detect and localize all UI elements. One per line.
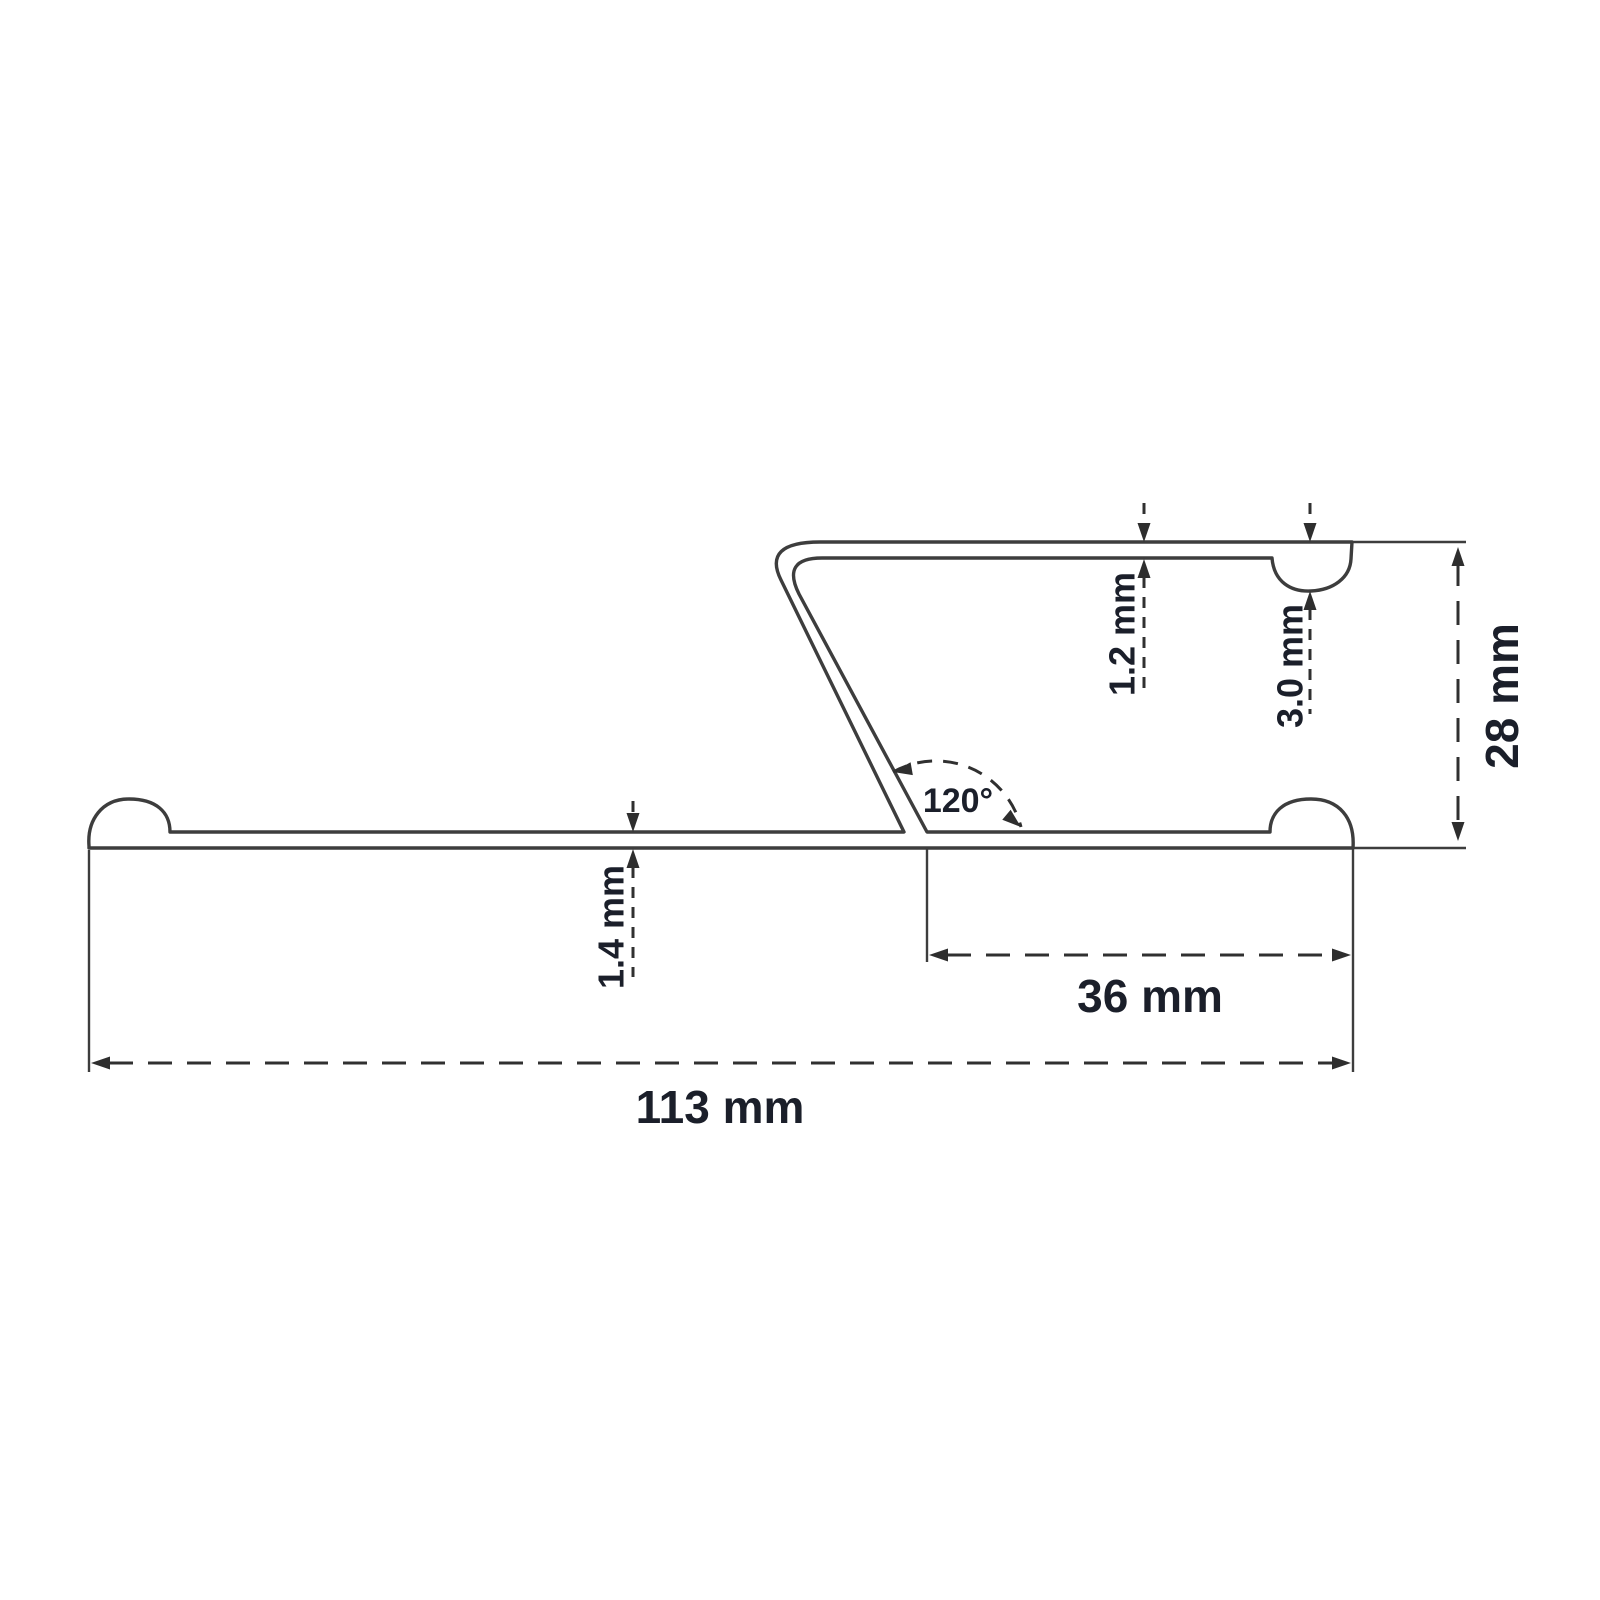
arrow-right-icon — [1332, 1057, 1351, 1070]
arrow-down-icon — [1452, 822, 1465, 841]
dim-label-base-thickness: 1.4 mm — [591, 865, 632, 989]
arrow-down-icon — [627, 813, 640, 832]
dim-label-overall-width: 113 mm — [636, 1081, 805, 1133]
arrow-down-icon — [1138, 523, 1151, 542]
dim-leg-offset: 36 mm — [927, 848, 1351, 1022]
dim-flange-thickness: 1.2 mm — [1102, 503, 1151, 696]
dim-label-leg-offset: 36 mm — [1077, 970, 1223, 1022]
dim-base-thickness: 1.4 mm — [591, 801, 640, 989]
dim-label-overall-height: 28 mm — [1476, 623, 1528, 769]
dim-overall-height: 28 mm — [1352, 542, 1528, 848]
dim-label-flange-thickness: 1.2 mm — [1102, 572, 1143, 696]
dim-label-angle: 120° — [923, 782, 993, 820]
arrow-left-icon — [91, 1057, 110, 1070]
profile-outline — [89, 542, 1353, 848]
arrow-down-right-icon — [1002, 810, 1025, 832]
drawing-canvas: 1.2 mm 3.0 mm 28 mm 120° 1.4 mm — [0, 0, 1600, 1600]
arrow-right-icon — [1332, 949, 1351, 962]
arrow-up-icon — [1452, 547, 1465, 566]
arrow-down-icon — [1304, 523, 1317, 542]
dim-bead-depth: 3.0 mm — [1270, 503, 1317, 728]
dim-label-bead-depth: 3.0 mm — [1270, 604, 1311, 728]
arrow-left-icon — [929, 949, 948, 962]
technical-drawing-svg: 1.2 mm 3.0 mm 28 mm 120° 1.4 mm — [0, 0, 1600, 1600]
